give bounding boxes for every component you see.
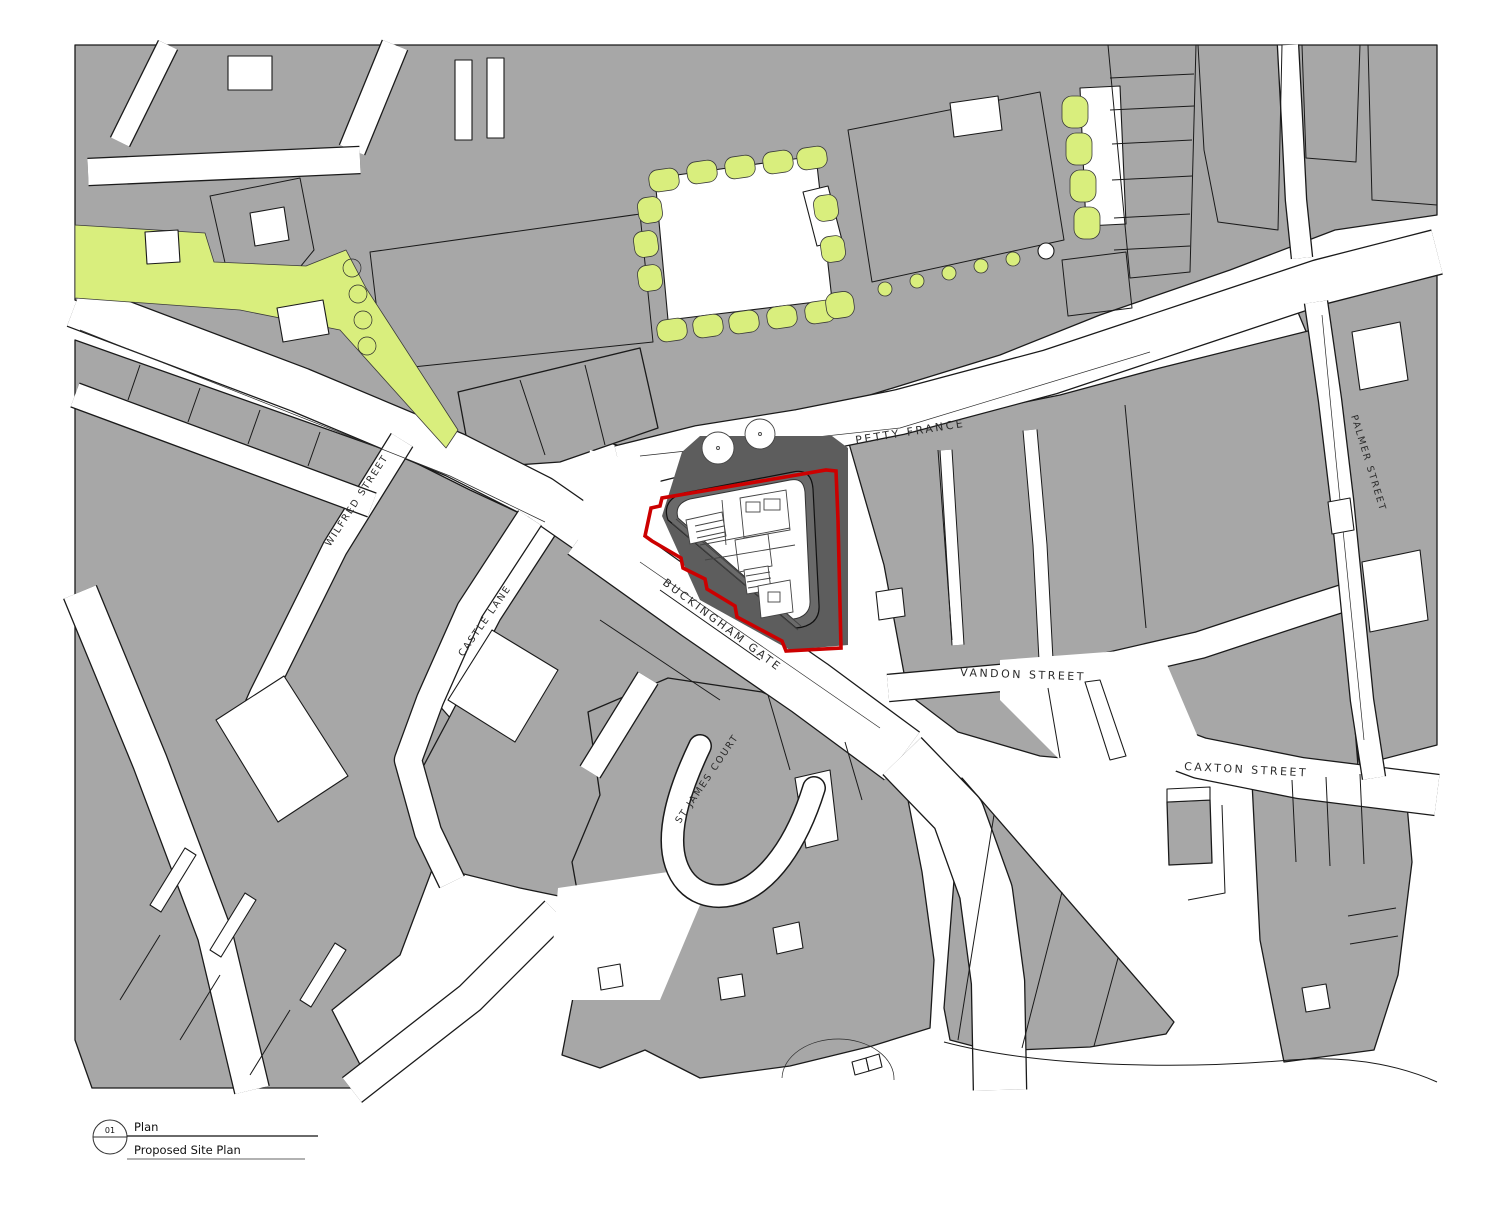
drawing-view-title: Proposed Site Plan bbox=[134, 1143, 241, 1157]
drawing-view-type: Plan bbox=[134, 1120, 158, 1134]
block-bottom-right-cluster bbox=[1252, 770, 1412, 1062]
site-plan-map: PETTY FRANCE BUCKINGHAM GATE VANDON STRE… bbox=[0, 0, 1506, 1214]
title-block: 01 Plan Proposed Site Plan bbox=[93, 1120, 318, 1159]
garden-square bbox=[655, 156, 832, 320]
drawing-ref-number: 01 bbox=[105, 1126, 115, 1135]
block-caxton-small bbox=[1167, 800, 1212, 865]
